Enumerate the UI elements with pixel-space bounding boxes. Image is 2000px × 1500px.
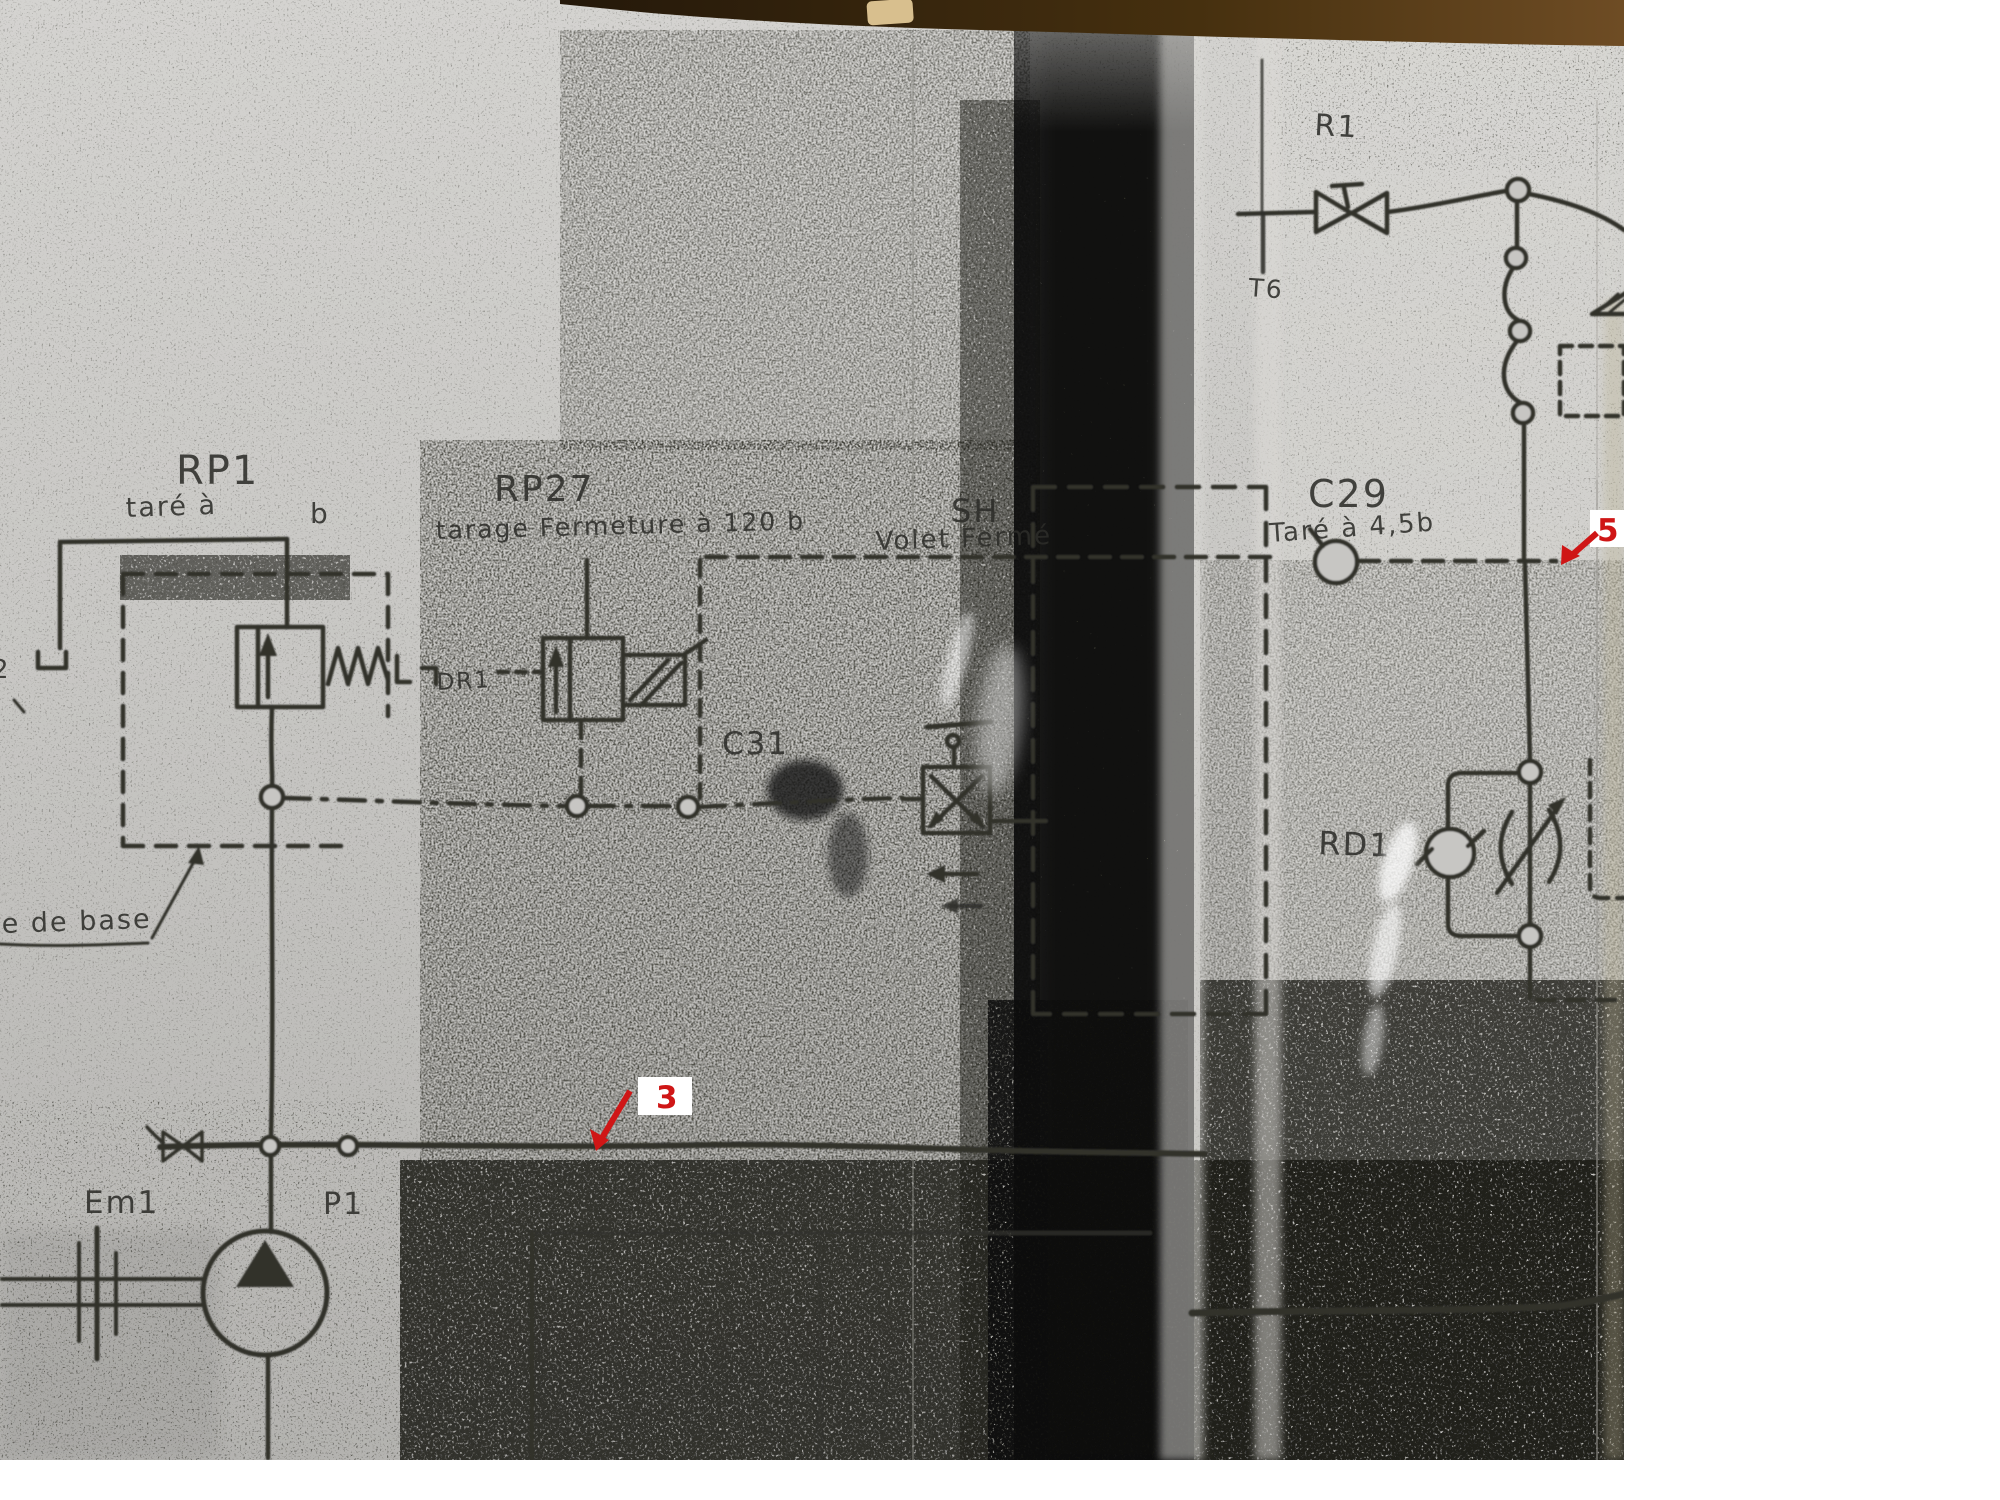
junction-node — [339, 1137, 357, 1155]
label-p1: P1 — [323, 1187, 364, 1222]
label-rp1-setting: taré à — [125, 490, 217, 524]
label-c31: C31 — [722, 726, 789, 762]
junction-node — [1507, 179, 1529, 201]
label-left-partial: 2 — [0, 655, 11, 685]
junction-node — [1519, 925, 1541, 947]
callout-3-number: 3 — [656, 1080, 678, 1116]
tan-tab — [866, 0, 914, 26]
screenshot-root: RP1 taré à b RP27 tarage Fermeture à 120… — [0, 0, 2000, 1500]
label-rp1-unit: b — [310, 497, 330, 530]
label-base-note: e de base — [1, 904, 152, 940]
check-valve-circle — [1426, 829, 1474, 877]
photo-area: RP1 taré à b RP27 tarage Fermeture à 120… — [0, 0, 1637, 1460]
label-em1: Em1 — [84, 1185, 160, 1221]
junction-node — [678, 797, 698, 817]
label-sh-state: Volet Fermé — [875, 521, 1052, 557]
callout-5-number: 5 — [1597, 513, 1619, 549]
label-rp27: RP27 — [494, 469, 595, 510]
label-r1: R1 — [1314, 108, 1360, 145]
label-dr1: DR1 — [436, 667, 492, 696]
junction-node — [261, 1137, 279, 1155]
junction-node — [1519, 761, 1541, 783]
label-rp1: RP1 — [176, 448, 259, 494]
label-rd1: RD1 — [1318, 824, 1393, 865]
label-t6: T6 — [1247, 273, 1285, 304]
photo-of-schematic: RP1 taré à b RP27 tarage Fermeture à 120… — [0, 0, 2000, 1500]
junction-node — [567, 796, 587, 816]
label-c29: C29 — [1308, 472, 1389, 516]
junction-node — [261, 786, 283, 808]
